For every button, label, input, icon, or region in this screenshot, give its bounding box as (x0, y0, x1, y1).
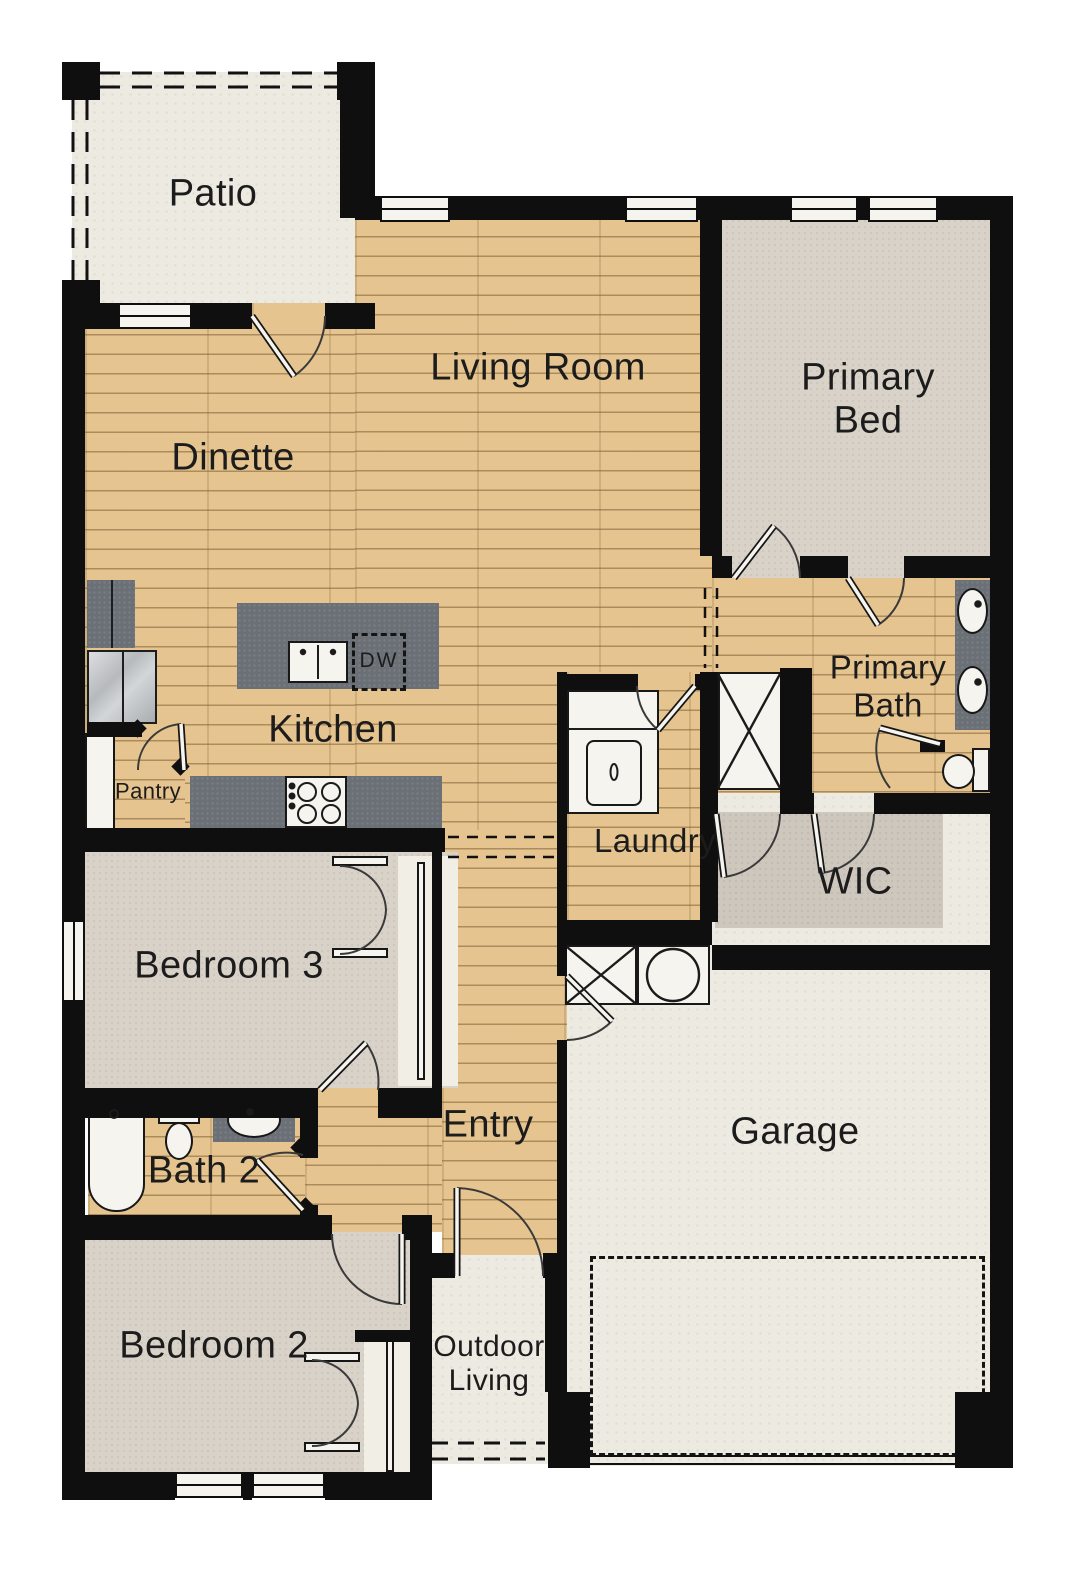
label-bedroom3: Bedroom 3 (134, 944, 323, 987)
wall-bedroom2-top-b (402, 1215, 432, 1240)
wall-laundry-right (700, 672, 718, 922)
bedroom2-bifold-slab-bottom (304, 1442, 360, 1452)
garage-bay-outline (590, 1256, 985, 1456)
label-primary-bath: Primary Bath (830, 648, 946, 723)
wall-laundry-bottom (557, 920, 712, 945)
window-primary-bed-1 (790, 196, 858, 222)
wall-wic-top-b (874, 793, 990, 814)
floor-plan: Patio Dinette Living Room Kitchen Pantry… (0, 0, 1092, 1573)
label-patio: Patio (169, 172, 258, 215)
wall-bedroom2-closet-stub (355, 1330, 410, 1342)
wall-bedroom3-bottom-a (85, 1088, 318, 1118)
wall-toilet-stub (920, 740, 945, 752)
primary-toilet-bowl (942, 754, 975, 789)
appliance-split (569, 728, 657, 730)
label-primary-bed: Primary Bed (801, 357, 935, 444)
fridge-door-split (122, 652, 124, 722)
wall-primary-bed-bottom-c (904, 556, 990, 578)
wall-laundry-top-a (558, 674, 638, 690)
wall-left-a (62, 316, 85, 920)
laundry-appliance-door (586, 740, 642, 806)
bedroom3-bifold-slab-top (332, 856, 388, 866)
window-bedroom3 (62, 920, 85, 1002)
wall-wic-bottom (712, 945, 990, 970)
window-primary-bed-2 (868, 196, 938, 222)
wall-bottom-b (243, 1472, 252, 1500)
label-kitchen: Kitchen (268, 708, 398, 751)
floor-patio-door-threshold (252, 303, 325, 318)
label-laundry: Laundry (594, 822, 716, 860)
wall-primary-bed-bottom-b (800, 556, 848, 578)
wall-top-c (698, 196, 790, 220)
wall-top-b (450, 196, 625, 220)
wall-bottom-a (62, 1472, 175, 1500)
wall-patio-bottom-c (325, 303, 375, 329)
wall-wic-top-a (780, 793, 814, 814)
label-dinette: Dinette (171, 436, 294, 479)
wall-garage-post-right (955, 1392, 1000, 1468)
bedroom3-bifold-slab-bottom (332, 948, 388, 958)
wall-bottom-c (325, 1472, 432, 1500)
refrigerator (87, 650, 157, 724)
window-patio-wall (118, 303, 192, 329)
label-wic: WIC (817, 860, 892, 903)
stove (285, 776, 347, 828)
wall-kitchen-bottom (85, 828, 445, 852)
pantry-shelf (85, 733, 115, 830)
bedroom2-closet-panel (386, 1338, 394, 1472)
wall-top-mullion (858, 196, 868, 220)
island-sink (288, 641, 348, 683)
label-pantry: Pantry (115, 778, 181, 803)
wall-entry-bottom-a (420, 1253, 455, 1278)
window-bedroom2-1 (175, 1472, 243, 1498)
wall-bedroom2-top-a (85, 1215, 332, 1240)
bedroom3-closet-floor (398, 856, 458, 1086)
label-outdoor-living: Outdoor Living (433, 1330, 544, 1398)
wall-patio-post-tr (337, 62, 375, 100)
window-living-2 (625, 196, 698, 222)
wall-left-b (62, 1002, 85, 1500)
wall-living-primary (700, 218, 722, 556)
floor-hall-entry (442, 830, 567, 1255)
linen-shower-box (718, 672, 782, 790)
kitchen-wall-cabinet (87, 580, 135, 648)
wall-bedroom3-bottom-b (378, 1088, 442, 1118)
label-garage: Garage (730, 1110, 859, 1153)
wall-closet-right (780, 668, 812, 795)
window-bedroom2-2 (252, 1472, 325, 1498)
wall-primary-bed-bottom-a (712, 556, 732, 578)
bedroom2-bifold-slab-top (304, 1352, 360, 1362)
label-dishwasher: DW (360, 649, 399, 673)
wall-right (990, 196, 1013, 1468)
bedroom3-closet-panel (417, 862, 425, 1080)
label-entry: Entry (443, 1103, 534, 1146)
wall-garage-post-left (548, 1392, 590, 1468)
window-living-1 (380, 196, 450, 222)
wall-outdoor-right (545, 1255, 567, 1392)
primary-bath-sink-1 (957, 588, 988, 634)
label-bath2: Bath 2 (148, 1149, 260, 1192)
washer-box (565, 945, 637, 1005)
wall-patio-post-tl (62, 62, 100, 100)
wall-patio-bottom-b (192, 303, 252, 329)
label-living-room: Living Room (430, 346, 646, 389)
wall-top-a (355, 196, 380, 220)
dryer-box (637, 945, 710, 1005)
wall-hall-right-b (557, 1040, 567, 1255)
primary-bath-sink-2 (957, 666, 988, 714)
label-bedroom2: Bedroom 2 (119, 1324, 308, 1367)
cabinet-door-split (111, 580, 113, 648)
wall-hall-left (432, 852, 442, 1088)
